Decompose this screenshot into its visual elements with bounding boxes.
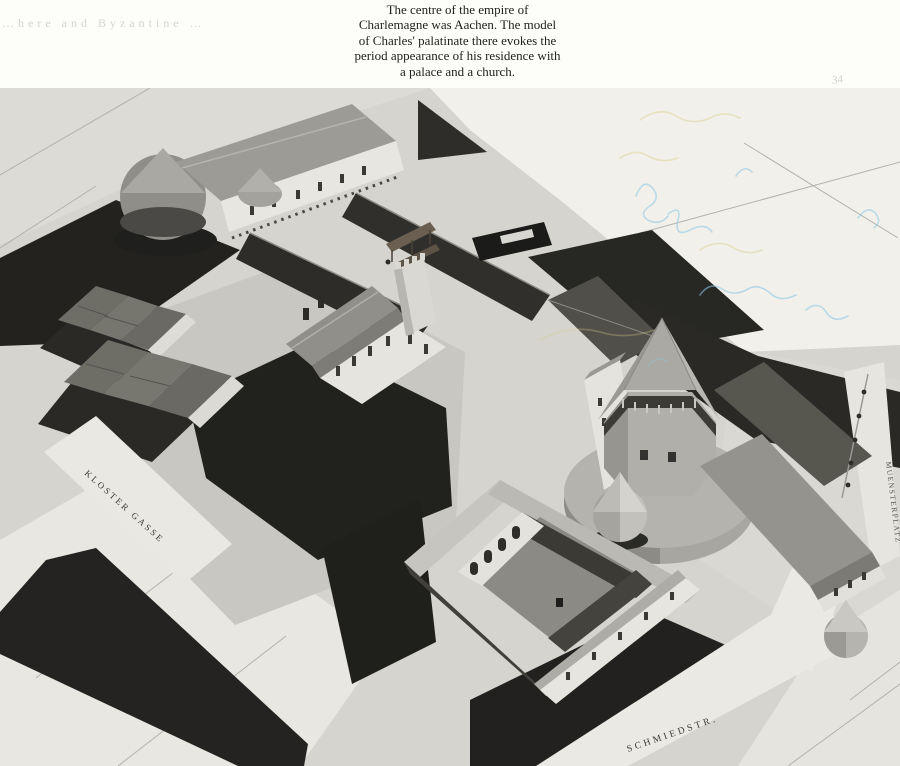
model-photograph: KLOSTER GASSE SCHMIEDSTR. MUENSTERPLATZ [0, 88, 900, 766]
cropped-header-text: …here and Byzantine … [2, 16, 282, 31]
photo-caption: The centre of the empire of Charlemagne … [295, 2, 620, 79]
pencil-page-mark: 34 [831, 73, 844, 86]
book-page: …here and Byzantine … The centre of the … [0, 0, 900, 766]
